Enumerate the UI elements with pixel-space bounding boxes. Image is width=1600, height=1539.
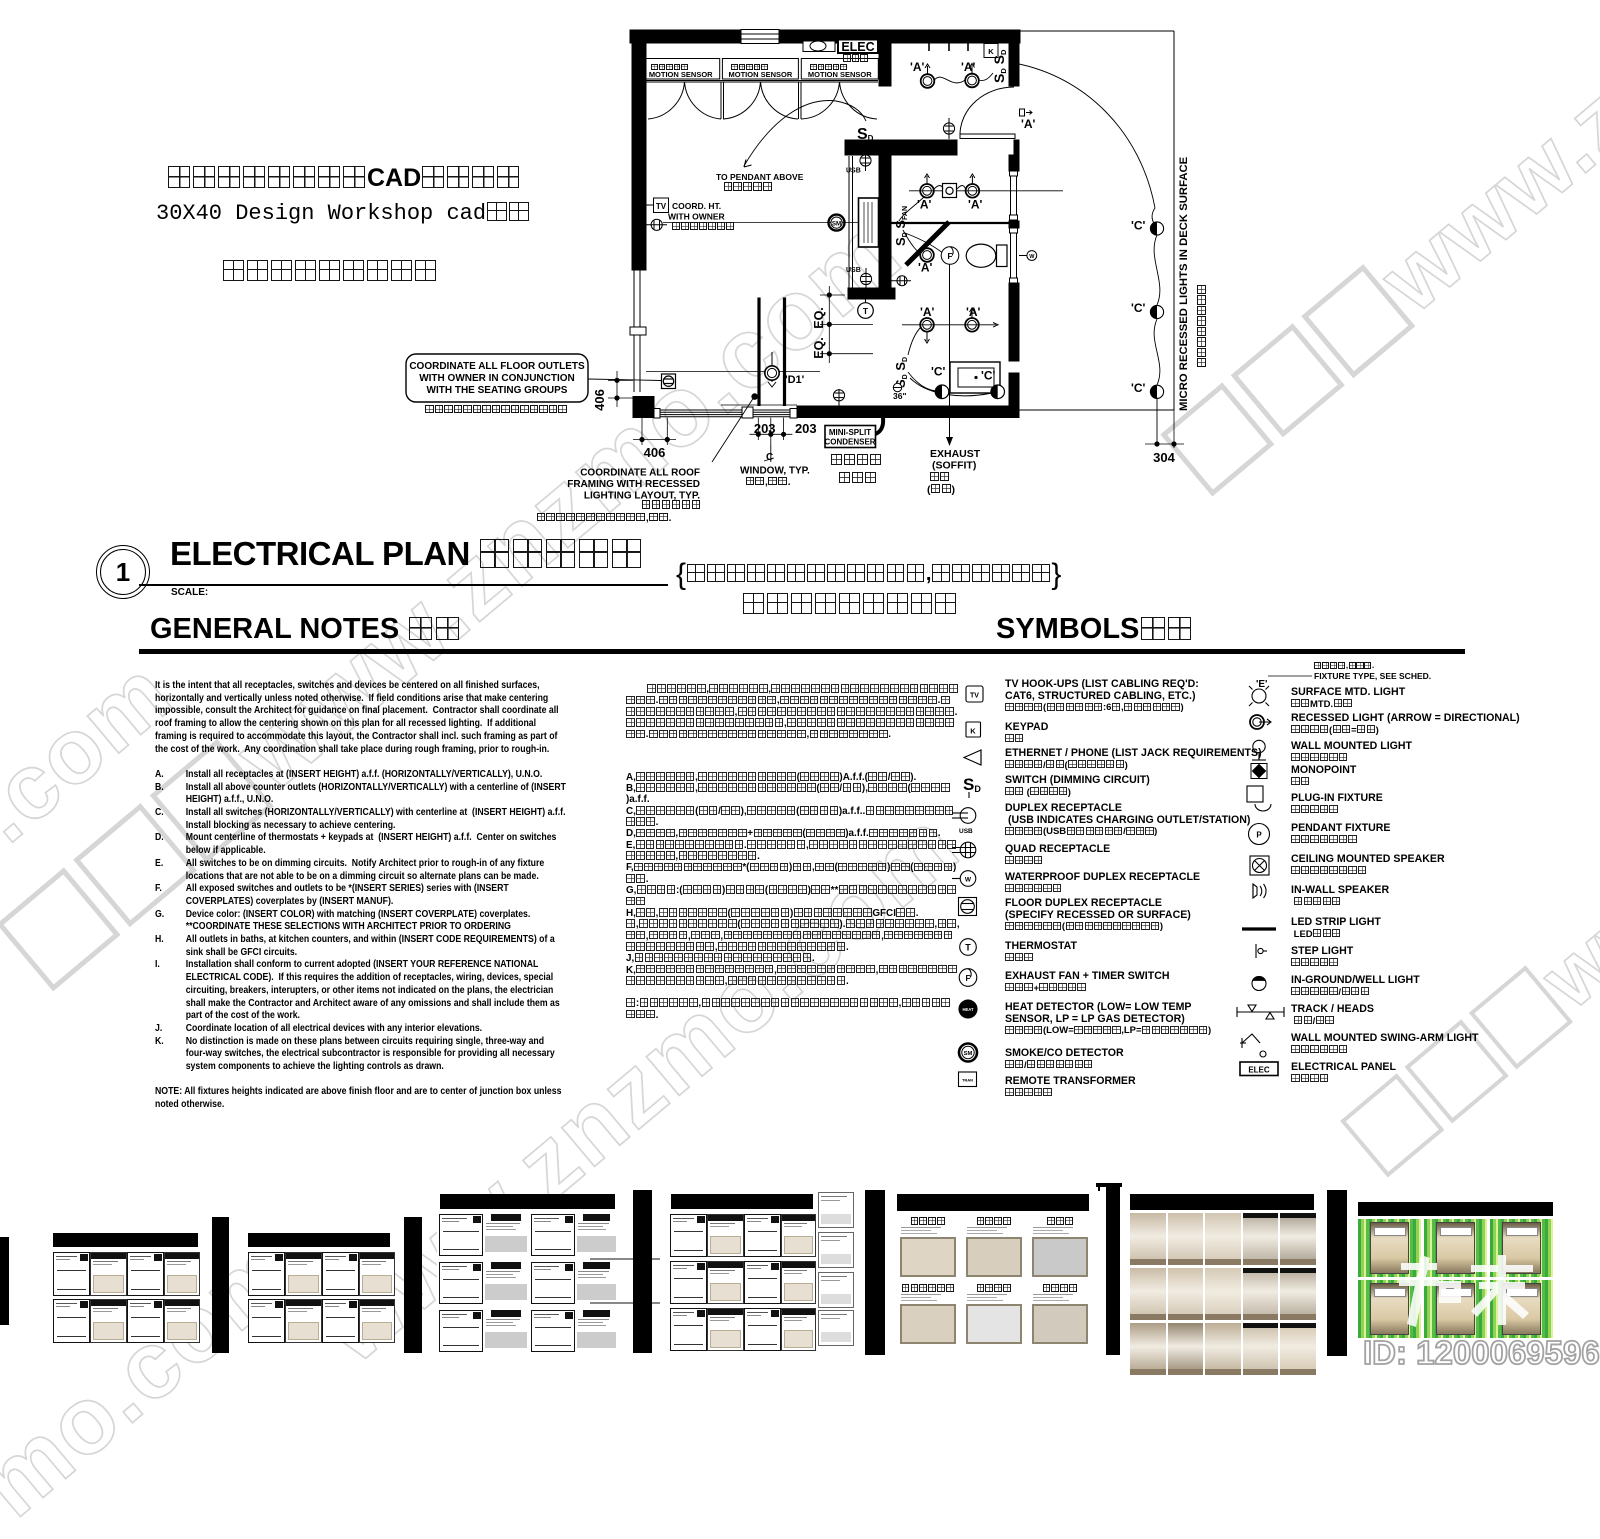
svg-text:COORDINATE ALL ROOF: COORDINATE ALL ROOF <box>580 468 700 479</box>
svg-text:F: F <box>948 252 953 261</box>
svg-text:TV: TV <box>970 693 979 700</box>
svg-text:W: W <box>1029 254 1035 260</box>
svg-text:WITH OWNER: WITH OWNER <box>668 212 725 222</box>
svg-text:SD: SD <box>857 126 874 143</box>
svg-text:MINI-SPLIT: MINI-SPLIT <box>829 428 871 437</box>
svg-text:F: F <box>966 974 971 983</box>
svg-text:TO PENDANT ABOVE: TO PENDANT ABOVE <box>716 172 804 182</box>
svg-text:FRAMING WITH RECESSED: FRAMING WITH RECESSED <box>567 479 700 490</box>
svg-text:T: T <box>965 943 971 953</box>
svg-text:SM: SM <box>832 220 841 227</box>
svg-text:USB: USB <box>846 267 861 274</box>
svg-text:WITH THE SEATING GROUPS: WITH THE SEATING GROUPS <box>427 385 568 396</box>
svg-text:'C': 'C' <box>1131 381 1146 395</box>
svg-text:'A': 'A' <box>917 198 932 212</box>
svg-text:'A': 'A' <box>961 60 976 74</box>
svg-text:406: 406 <box>592 389 607 411</box>
svg-text:P: P <box>1256 831 1262 840</box>
svg-text:304: 304 <box>1153 450 1175 465</box>
svg-text:C: C <box>766 452 773 463</box>
svg-text:COORD. HT.: COORD. HT. <box>672 201 721 211</box>
svg-text:(SOFFIT): (SOFFIT) <box>932 460 976 472</box>
svg-text:'A': 'A' <box>966 305 981 319</box>
svg-text:WINDOW, TYP.: WINDOW, TYP. <box>740 466 810 477</box>
svg-text:COORDINATE ALL FLOOR OUTLETS: COORDINATE ALL FLOOR OUTLETS <box>409 361 585 372</box>
svg-text:WITH OWNER IN CONJUNCTION: WITH OWNER IN CONJUNCTION <box>419 373 575 384</box>
svg-text:USB: USB <box>959 828 973 835</box>
svg-text:'C': 'C' <box>931 365 946 379</box>
svg-text:36": 36" <box>893 391 907 401</box>
svg-text:ELEC: ELEC <box>1248 1066 1270 1075</box>
svg-text:HEAT: HEAT <box>962 1007 974 1012</box>
svg-text:TRAN: TRAN <box>962 1078 973 1083</box>
svg-text:'C': 'C' <box>1131 219 1146 233</box>
svg-text:'A': 'A' <box>1021 117 1036 131</box>
svg-text:SM: SM <box>964 1051 973 1057</box>
svg-text:SD SFAN: SD SFAN <box>893 206 909 246</box>
svg-text:TV: TV <box>656 202 667 211</box>
svg-text:K: K <box>970 727 976 736</box>
svg-text:'A': 'A' <box>920 305 935 319</box>
svg-text:ELEC: ELEC <box>841 40 874 54</box>
svg-text:'D1': 'D1' <box>785 374 805 386</box>
svg-text:MICRO RECESSED LIGHTS IN DECK: MICRO RECESSED LIGHTS IN DECK SURFACE <box>1178 156 1190 411</box>
svg-text:W: W <box>965 877 972 884</box>
svg-text:USB: USB <box>846 168 861 175</box>
svg-text:'C': 'C' <box>981 369 996 383</box>
svg-text:'C': 'C' <box>1131 301 1146 315</box>
svg-text:'A': 'A' <box>968 198 983 212</box>
svg-text:CONDENSER: CONDENSER <box>824 438 875 447</box>
svg-text:'A': 'A' <box>918 261 933 275</box>
svg-text:203: 203 <box>795 421 817 436</box>
svg-text:EXHAUST: EXHAUST <box>930 448 981 460</box>
svg-text:EQ.: EQ. <box>812 337 826 359</box>
svg-text:K: K <box>988 47 994 56</box>
svg-text:T: T <box>863 306 869 316</box>
svg-text:SD: SD <box>963 775 981 794</box>
svg-text:EQ.: EQ. <box>812 307 826 329</box>
svg-text:406: 406 <box>644 445 666 460</box>
svg-text:'A': 'A' <box>910 60 925 74</box>
